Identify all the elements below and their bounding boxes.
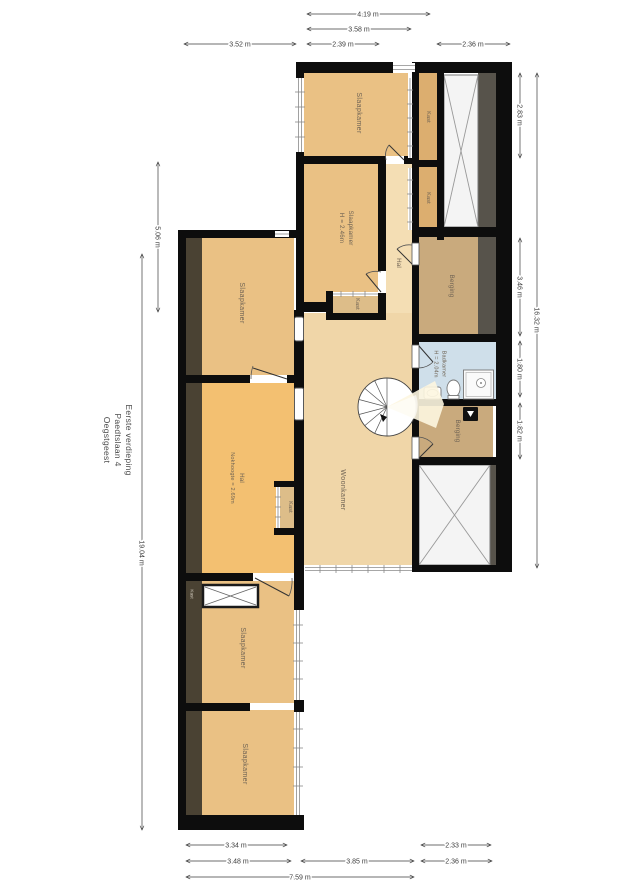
dim-right-283: 2.83 m — [516, 104, 523, 126]
floorplan-page: Slaapkamer Kast Kast Slaapkamer H = 2.46… — [0, 0, 629, 890]
dim-bottom-236: 2.36 m — [445, 859, 467, 866]
dim-top-239: 2.39 m — [332, 42, 354, 49]
dim-bottom-759: 7.59 m — [289, 875, 311, 882]
room-slaapkamer-left — [202, 238, 294, 375]
label-hal-left: Hal — [238, 473, 245, 483]
dim-top-419: 4.19 m — [357, 12, 379, 19]
shower-icon — [464, 370, 494, 399]
label-slaapkamer-top: Slaapkamer — [355, 92, 362, 134]
title-line-2: Paedtslaan 4 — [113, 413, 123, 466]
label-slaapkamer-bottom-mid: Slaapkamer — [239, 627, 246, 669]
dim-right-1632: 16.32 m — [533, 307, 540, 332]
label-badkamer-height: H = 2.04m — [433, 350, 439, 378]
closet-hatched — [203, 585, 258, 607]
dim-top-352: 3.52 m — [229, 42, 251, 49]
room-woonkamer — [304, 313, 412, 565]
label-berging-top: Berging — [448, 275, 455, 298]
label-slaapkamer-mid: Slaapkamer — [347, 210, 354, 245]
dim-top-358: 3.58 m — [348, 27, 370, 34]
roof-slope-right-top — [478, 73, 496, 340]
void-area-bottom — [419, 465, 490, 565]
floor-plan-svg: Slaapkamer Kast Kast Slaapkamer H = 2.46… — [0, 0, 629, 890]
dim-top-236: 2.36 m — [462, 42, 484, 49]
dim-bottom-334: 3.34 m — [225, 843, 247, 850]
label-hal-left-height: Nokhoogte = 2.69m — [229, 452, 235, 504]
label-kast-5: Kast — [190, 589, 195, 599]
label-slaapkamer-bottom: Slaapkamer — [241, 743, 248, 785]
label-slaapkamer-left: Slaapkamer — [238, 282, 245, 324]
room-hal-left — [202, 383, 294, 573]
label-badkamer: Badkamer — [441, 351, 447, 378]
void-area-top — [444, 75, 478, 227]
label-slaapkamer-mid-height: H = 2.46m — [338, 213, 345, 244]
title-line-1: Eerste verdieping — [124, 404, 134, 475]
dim-right-180: 1.80 m — [516, 358, 523, 380]
door-leaf-inset-slaapkamer-left — [295, 317, 304, 341]
label-woonkamer: Woonkamer — [339, 469, 346, 510]
dim-right-346: 3.46 m — [516, 276, 523, 298]
label-kast-3: Kast — [354, 298, 360, 310]
plan-title: Eerste verdieping Paedtslaan 4 Oegstgees… — [102, 404, 134, 475]
label-berging-bottom: Berging — [454, 420, 461, 443]
mechanical-unit-icon — [463, 407, 478, 421]
toilet-icon — [447, 380, 460, 399]
dim-right-182: 1.82 m — [516, 420, 523, 442]
dim-bottom-348: 3.48 m — [227, 859, 249, 866]
roof-slope-left — [186, 238, 202, 822]
label-hal-corridor: Hal — [395, 258, 402, 268]
dim-left-1904: 19.04 m — [138, 540, 145, 565]
dim-bottom-385: 3.85 m — [346, 859, 368, 866]
dim-bottom-233: 2.33 m — [445, 843, 467, 850]
title-line-3: Oegstgeest — [102, 417, 112, 464]
dim-left-506: 5.06 m — [154, 226, 161, 248]
door-leaf-inset-hal-left — [295, 388, 304, 420]
label-kast-4: Kast — [287, 501, 293, 513]
label-kast-2: Kast — [425, 192, 431, 204]
label-kast-1: Kast — [425, 111, 431, 123]
